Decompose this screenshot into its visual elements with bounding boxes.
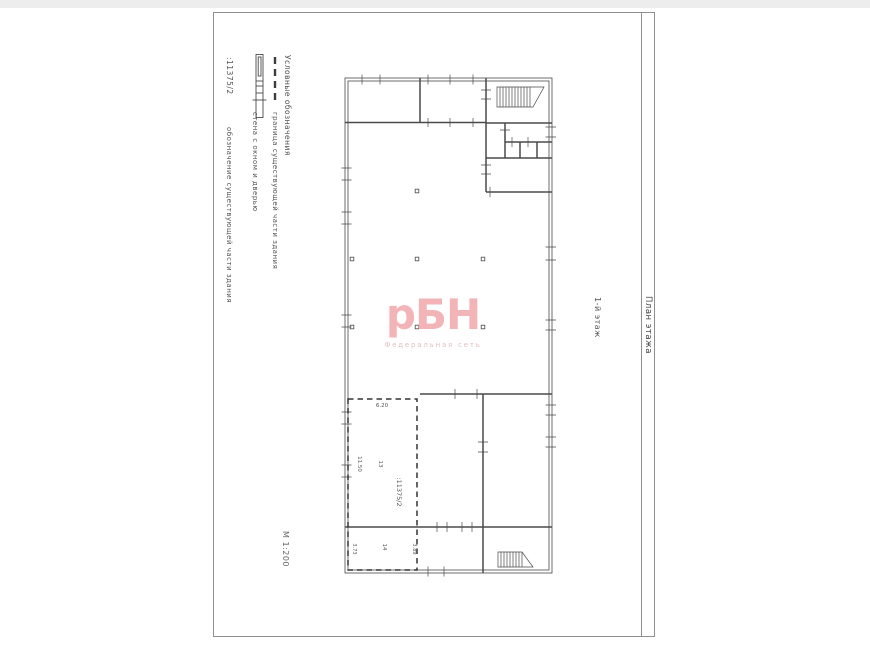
plan-labels: 6.20 11.50 13 :11375/2 3.73 14 3.89 (351, 403, 417, 555)
interior-walls (345, 78, 552, 573)
room-13-label: 13 (377, 461, 383, 468)
scale-label: М 1:200 (281, 531, 290, 567)
column-markers (350, 189, 485, 329)
page-title: План этажа (643, 296, 653, 354)
legend-wall-window-door-icon (252, 53, 267, 121)
staircase-bottom (498, 552, 533, 567)
staircase-top (497, 87, 544, 107)
legend-item-boundary-label: граница существующей части здания (271, 112, 279, 269)
dim-room14-left-label: 3.73 (351, 543, 357, 554)
floor-label: 1-й этаж (593, 297, 602, 338)
legend-item-wall-label: стена с окном и дверью (251, 112, 259, 212)
dim-top-label: 6.20 (376, 403, 389, 409)
title-column-divider (641, 12, 642, 637)
room-14-label: 14 (381, 544, 387, 551)
outer-walls (345, 78, 552, 573)
window-door-ticks (342, 75, 557, 577)
legend-title: Условные обозначения (283, 55, 292, 156)
scan-top-strip (0, 0, 870, 8)
legend-dashed-line-icon (271, 56, 279, 106)
dim-room14-right-label: 3.89 (411, 543, 417, 554)
legend-item-cadastral-label: обозначение существующей части здания (225, 127, 233, 303)
scanned-floor-plan-page: Условные обозначения граница существующе… (0, 0, 870, 652)
legend-cadastral-symbol: :11375/2 (225, 57, 234, 95)
cadastral-number-label: :11375/2 (395, 477, 403, 506)
floor-plan: 6.20 11.50 13 :11375/2 3.73 14 3.89 (340, 72, 558, 580)
dim-left-label: 11.50 (356, 456, 362, 472)
